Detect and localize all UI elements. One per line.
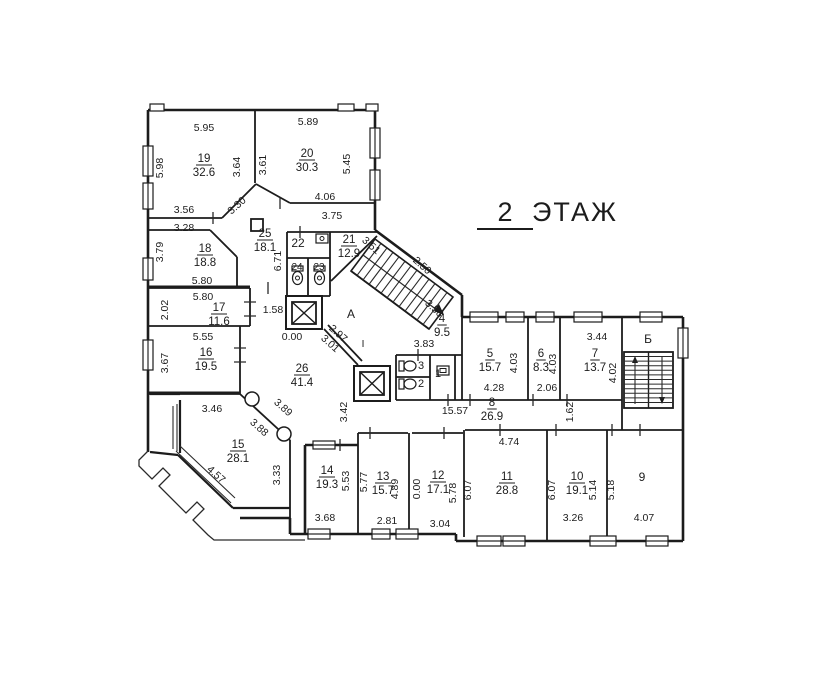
dimension-label: 5.55	[193, 331, 214, 343]
dimension-label: 3.67	[159, 353, 171, 374]
dimension-label: 0.00	[411, 479, 423, 500]
room-area-label: 18.8	[194, 257, 216, 269]
room-number-label: 12	[432, 470, 445, 482]
dimension-label: 5.80	[193, 291, 214, 303]
dimension-label: 3.64	[231, 157, 243, 178]
floor-title: 2 ЭТАЖ	[477, 197, 618, 229]
dimension-label: 3.44	[587, 331, 608, 343]
room-area-label: 19.5	[195, 361, 217, 373]
dimension-label: 6.71	[272, 251, 284, 272]
room-number-label: 20	[301, 148, 314, 160]
room-mark-label: 3	[418, 360, 424, 372]
room-number-label: 26	[296, 363, 309, 375]
room-number-label: 8	[489, 397, 495, 409]
dimension-label: 4.06	[315, 191, 336, 203]
dimension-label: 3.61	[257, 155, 269, 176]
dimension-label: 6.07	[462, 480, 474, 501]
dimension-label: 3.56	[174, 204, 195, 216]
dimension-label: 2.02	[159, 300, 171, 321]
stair-tread	[393, 270, 417, 302]
dimension-label: 5.89	[298, 116, 319, 128]
room-mark-label: 9	[639, 470, 646, 484]
dimension-label: 6.07	[546, 480, 558, 501]
stair-tread	[375, 257, 399, 289]
dimension-label: 4.74	[499, 436, 520, 448]
room-number-label: 5	[487, 348, 493, 360]
room-number-label: 17	[213, 302, 226, 314]
room-number-label: 21	[343, 234, 356, 246]
stair-tread	[399, 275, 423, 307]
room-mark-label: 22	[291, 236, 305, 250]
dimension-label: 3.83	[414, 338, 435, 350]
room-number-label: 18	[199, 243, 212, 255]
dimension-label: 3.46	[202, 403, 223, 415]
room-number-label: 15	[232, 439, 245, 451]
room-mark-label: 1	[435, 368, 441, 380]
room-number-label: 25	[259, 228, 272, 240]
dimension-label: 4.07	[634, 512, 655, 524]
floor-number: 2	[497, 197, 512, 227]
room-area-label: 17.1	[427, 484, 449, 496]
room-number-label: 16	[200, 347, 213, 359]
room-area-label: 19.3	[316, 479, 338, 491]
dimension-label: 3.89	[271, 396, 294, 419]
room-number-label: 14	[321, 465, 334, 477]
dimension-label: 5.18	[605, 480, 617, 501]
room-area-label: 28.1	[227, 453, 249, 465]
room-area-label: 19.1	[566, 485, 588, 497]
dimension-label: 2.06	[537, 382, 558, 394]
room-area-label: 32.6	[193, 167, 215, 179]
dimension-label: 3.75	[322, 210, 343, 222]
floor-word: ЭТАЖ	[532, 197, 618, 227]
dimension-label: 3.33	[271, 465, 283, 486]
dimension-label: 3.30	[225, 194, 248, 217]
room-area-label: 9.5	[434, 327, 450, 339]
staircase-b	[624, 352, 673, 408]
room-area-label: 12.9	[338, 248, 360, 260]
dimension-label: 1.62	[564, 402, 576, 423]
dimension-label: 4.03	[508, 353, 520, 374]
room-number-label: 6	[538, 348, 544, 360]
dimension-label: 5.53	[340, 471, 352, 492]
dimension-label: 2.81	[377, 515, 398, 527]
room-mark-label: А	[347, 307, 355, 321]
dimension-label: 15.57	[442, 405, 468, 417]
room-area-label: 28.8	[496, 485, 518, 497]
room-number-label: 11	[501, 471, 513, 483]
dimension-label: 5.45	[341, 154, 353, 175]
dimension-label: 3.79	[154, 242, 166, 263]
room-mark-label: 2	[418, 378, 424, 390]
room-area-label: 15.7	[479, 362, 501, 374]
room-area-label: 11.6	[208, 316, 230, 328]
dimension-label: 4.03	[547, 354, 559, 375]
dimension-label: 1.58	[263, 304, 284, 316]
room-area-label: 13.7	[584, 362, 606, 374]
dimension-label: 0.00	[282, 331, 303, 343]
dimension-label: 5.78	[447, 483, 459, 504]
room-area-label: 41.4	[291, 377, 314, 389]
elevator-1-icon	[286, 296, 322, 329]
room-number-label: 10	[571, 471, 584, 483]
room-number-label: 19	[198, 153, 211, 165]
room-number-label: 7	[592, 348, 598, 360]
room-mark-label: I	[362, 339, 365, 350]
room-area-label: 30.3	[296, 162, 318, 174]
dimension-label: 3.42	[338, 402, 350, 423]
room-mark-label: 24	[291, 262, 303, 273]
dimension-label: 3.68	[315, 512, 336, 524]
room-mark-label: Б	[644, 332, 652, 346]
stair-tread	[381, 261, 405, 293]
dimension-label: 3.26	[563, 512, 584, 524]
dimension-label: 5.95	[194, 122, 215, 134]
dimension-label: 5.14	[587, 480, 599, 501]
elevator-2-icon	[354, 366, 390, 401]
dimension-label: 3.28	[174, 222, 195, 234]
room-area-label: 26.9	[481, 411, 503, 423]
room-number-label: 13	[377, 471, 390, 483]
stair-tread	[369, 252, 393, 284]
dimension-label: 5.98	[154, 158, 166, 179]
dimension-label: 4.89	[389, 479, 401, 500]
room-mark-label: 23	[313, 262, 325, 273]
dimension-label: 4.02	[607, 363, 619, 384]
dimension-label: 3.51	[359, 234, 382, 257]
dimension-label: 5.77	[358, 472, 370, 493]
dimension-label: 5.80	[192, 275, 213, 287]
dimension-label: 4.28	[484, 382, 505, 394]
dimension-label: 3.04	[430, 518, 451, 530]
floor-plan-drawing: 2 ЭТАЖ 1932.62030.31818.82518.12112.9171…	[0, 0, 833, 682]
stair-tread	[387, 266, 411, 298]
floor-plan-page: 2 ЭТАЖ 1932.62030.31818.82518.12112.9171…	[0, 0, 833, 682]
